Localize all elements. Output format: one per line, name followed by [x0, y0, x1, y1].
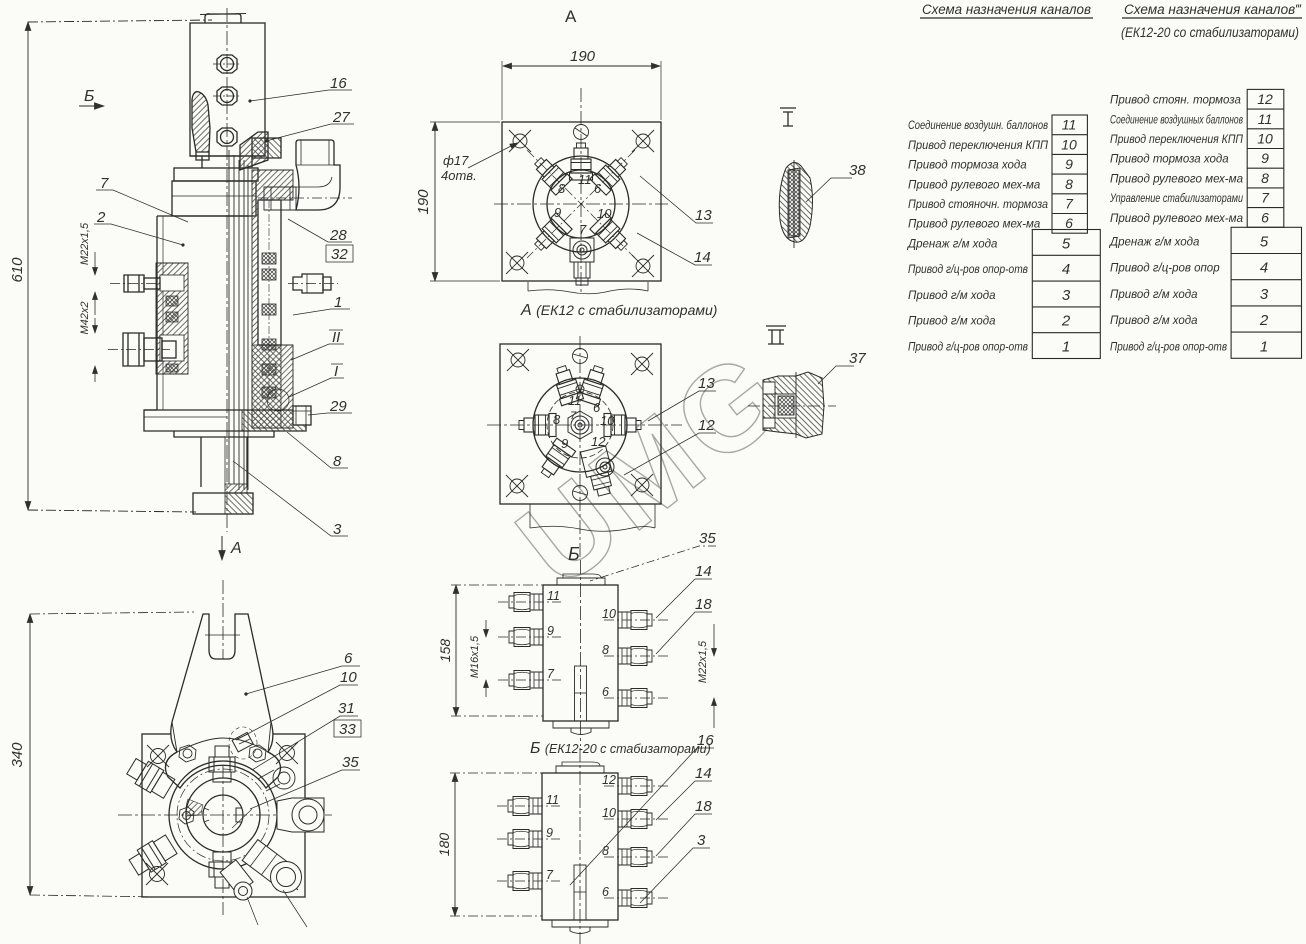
svg-text:1: 1: [1260, 338, 1268, 355]
svg-text:340: 340: [9, 742, 26, 768]
svg-text:Б: Б: [568, 544, 580, 564]
svg-text:Привод переключения КПП: Привод переключения КПП: [908, 140, 1049, 152]
svg-text:11: 11: [547, 589, 560, 603]
svg-text:Б (ЕК12-20 с стабизаторами): Б (ЕК12-20 с стабизаторами): [530, 740, 711, 757]
svg-text:610: 610: [9, 257, 26, 283]
svg-text:5: 5: [1062, 235, 1071, 252]
svg-text:(ЕК12-20 со стабилизаторами): (ЕК12-20 со стабилизаторами): [1121, 25, 1299, 40]
svg-text:Соединение воздушных баллонов: Соединение воздушных баллонов: [1110, 114, 1243, 126]
svg-text:3: 3: [697, 832, 706, 849]
svg-text:4: 4: [1260, 260, 1268, 277]
svg-text:I: I: [334, 363, 338, 380]
svg-text:190: 190: [570, 48, 596, 65]
svg-text:7: 7: [579, 222, 587, 237]
svg-text:2: 2: [96, 209, 106, 226]
svg-text:190: 190: [415, 189, 432, 215]
svg-text:37: 37: [849, 350, 866, 367]
svg-text:10: 10: [602, 607, 616, 621]
svg-text:9: 9: [1065, 156, 1073, 172]
svg-text:11: 11: [578, 172, 592, 187]
svg-text:7: 7: [100, 175, 109, 192]
svg-text:10: 10: [597, 206, 612, 221]
svg-text:Привод г/м хода: Привод г/м хода: [908, 316, 996, 328]
svg-text:32: 32: [331, 246, 348, 263]
svg-text:М22х1,5: М22х1,5: [79, 222, 91, 265]
svg-text:Дренаж г/м хода: Дренаж г/м хода: [906, 238, 997, 250]
svg-text:13: 13: [698, 375, 715, 392]
svg-text:Привод стоян. тормоза: Привод стоян. тормоза: [1110, 95, 1241, 107]
svg-text:6: 6: [602, 885, 609, 899]
svg-text:10: 10: [1257, 131, 1273, 147]
svg-text:6: 6: [1261, 209, 1269, 225]
svg-text:8: 8: [602, 844, 609, 858]
svg-text:Привод рулевого мех-ма: Привод рулевого мех-ма: [908, 219, 1040, 231]
svg-text:14: 14: [694, 249, 711, 266]
svg-text:8: 8: [1261, 170, 1269, 186]
svg-text:16: 16: [330, 75, 347, 92]
svg-text:Б: Б: [84, 88, 94, 105]
svg-text:Схема назначения каналов‴: Схема назначения каналов‴: [1124, 2, 1302, 17]
svg-text:Привод г/ц-ров опор-отв: Привод г/ц-ров опор-отв: [908, 342, 1028, 354]
svg-text:9: 9: [546, 826, 553, 840]
svg-text:Привод тормоза хода: Привод тормоза хода: [1110, 154, 1229, 166]
svg-text:180: 180: [436, 833, 452, 857]
svg-text:14: 14: [695, 563, 712, 580]
svg-text:33: 33: [339, 721, 356, 738]
svg-text:Привод тормоза хода: Привод тормоза хода: [908, 160, 1027, 172]
svg-text:35: 35: [342, 754, 359, 771]
svg-text:Привод г/ц-ров опор-отв: Привод г/ц-ров опор-отв: [1110, 341, 1227, 353]
svg-text:Соединение воздушн. баллонов: Соединение воздушн. баллонов: [908, 120, 1048, 132]
svg-text:12: 12: [1257, 91, 1273, 107]
svg-text:8: 8: [333, 453, 342, 470]
svg-text:18: 18: [695, 596, 712, 613]
svg-text:11: 11: [1258, 111, 1273, 127]
svg-text:10: 10: [600, 413, 615, 428]
svg-text:UMG: UMG: [494, 323, 811, 612]
svg-text:6: 6: [602, 685, 609, 699]
svg-text:8: 8: [1065, 176, 1073, 192]
svg-text:Схема назначения каналов: Схема назначения каналов: [922, 2, 1091, 17]
svg-text:Привод рулевого мех-ма: Привод рулевого мех-ма: [1110, 213, 1243, 225]
svg-text:9: 9: [561, 436, 568, 451]
svg-text:ф17: ф17: [443, 153, 469, 168]
svg-text:7: 7: [546, 868, 554, 882]
svg-text:М16х1,5: М16х1,5: [469, 635, 481, 678]
svg-text:12: 12: [698, 417, 715, 434]
svg-text:Привод г/м хода: Привод г/м хода: [1110, 315, 1198, 327]
svg-text:11: 11: [1062, 117, 1077, 133]
svg-text:12: 12: [591, 434, 606, 449]
svg-text:4отв.: 4отв.: [441, 168, 477, 183]
svg-text:Привод стояночн. тормоза: Привод стояночн. тормоза: [908, 199, 1048, 211]
svg-text:13: 13: [695, 207, 712, 224]
svg-text:27: 27: [332, 109, 350, 126]
svg-text:10: 10: [1061, 136, 1077, 152]
svg-text:158: 158: [437, 639, 453, 663]
svg-text:Привод переключения КПП: Привод переключения КПП: [1110, 134, 1244, 146]
svg-text:7: 7: [547, 667, 555, 681]
svg-text:28: 28: [329, 227, 347, 244]
svg-text:1: 1: [334, 294, 342, 311]
svg-text:3: 3: [1062, 287, 1071, 304]
svg-text:7: 7: [1065, 196, 1074, 212]
svg-text:9: 9: [554, 205, 561, 220]
svg-text:А: А: [565, 7, 577, 26]
svg-text:6: 6: [344, 650, 353, 667]
svg-text:2: 2: [1061, 313, 1071, 330]
svg-text:10: 10: [340, 669, 357, 686]
svg-text:Привод рулевого мех-ма: Привод рулевого мех-ма: [908, 179, 1040, 191]
svg-text:9: 9: [1261, 150, 1269, 166]
svg-text:М42х2: М42х2: [79, 301, 91, 334]
svg-text:Привод г/ц-ров опор: Привод г/ц-ров опор: [1110, 263, 1220, 275]
svg-text:4: 4: [1062, 261, 1070, 278]
svg-text:Привод г/м хода: Привод г/м хода: [1110, 289, 1198, 301]
svg-text:12: 12: [602, 773, 616, 787]
svg-text:14: 14: [695, 765, 712, 782]
svg-text:5: 5: [1260, 234, 1269, 251]
svg-text:2: 2: [1259, 312, 1269, 329]
svg-text:11: 11: [568, 393, 582, 408]
svg-text:18: 18: [695, 798, 712, 815]
svg-text:Привод г/м хода: Привод г/м хода: [908, 290, 996, 302]
svg-text:31: 31: [338, 700, 355, 717]
svg-text:А: А: [230, 540, 242, 557]
svg-text:А (ЕК12 с стабилизаторами): А (ЕК12 с стабилизаторами): [520, 302, 717, 319]
svg-text:7: 7: [570, 410, 577, 422]
svg-text:11: 11: [546, 793, 559, 807]
svg-text:8: 8: [602, 643, 609, 657]
svg-text:7: 7: [1261, 190, 1270, 206]
svg-text:3: 3: [333, 521, 342, 538]
svg-text:Привод г/ц-ров опор-отв: Привод г/ц-ров опор-отв: [908, 264, 1028, 276]
svg-text:8: 8: [558, 181, 566, 196]
svg-text:6: 6: [594, 181, 602, 196]
svg-text:6: 6: [1065, 215, 1073, 231]
svg-text:16: 16: [697, 732, 714, 749]
svg-text:38: 38: [849, 162, 866, 179]
svg-text:3: 3: [1260, 286, 1269, 303]
svg-text:М22х1,5: М22х1,5: [697, 640, 709, 683]
svg-text:II: II: [332, 329, 340, 346]
svg-text:10: 10: [602, 806, 616, 820]
svg-text:29: 29: [329, 398, 347, 415]
svg-text:Дренаж г/м хода: Дренаж г/м хода: [1108, 237, 1199, 249]
svg-text:9: 9: [547, 624, 554, 638]
svg-text:1: 1: [1062, 339, 1070, 356]
svg-text:Управление стабилизаторами: Управление стабилизаторами: [1109, 193, 1243, 205]
svg-text:35: 35: [699, 530, 716, 547]
svg-text:Привод рулевого мех-ма: Привод рулевого мех-ма: [1110, 173, 1243, 185]
svg-text:8: 8: [553, 412, 561, 427]
